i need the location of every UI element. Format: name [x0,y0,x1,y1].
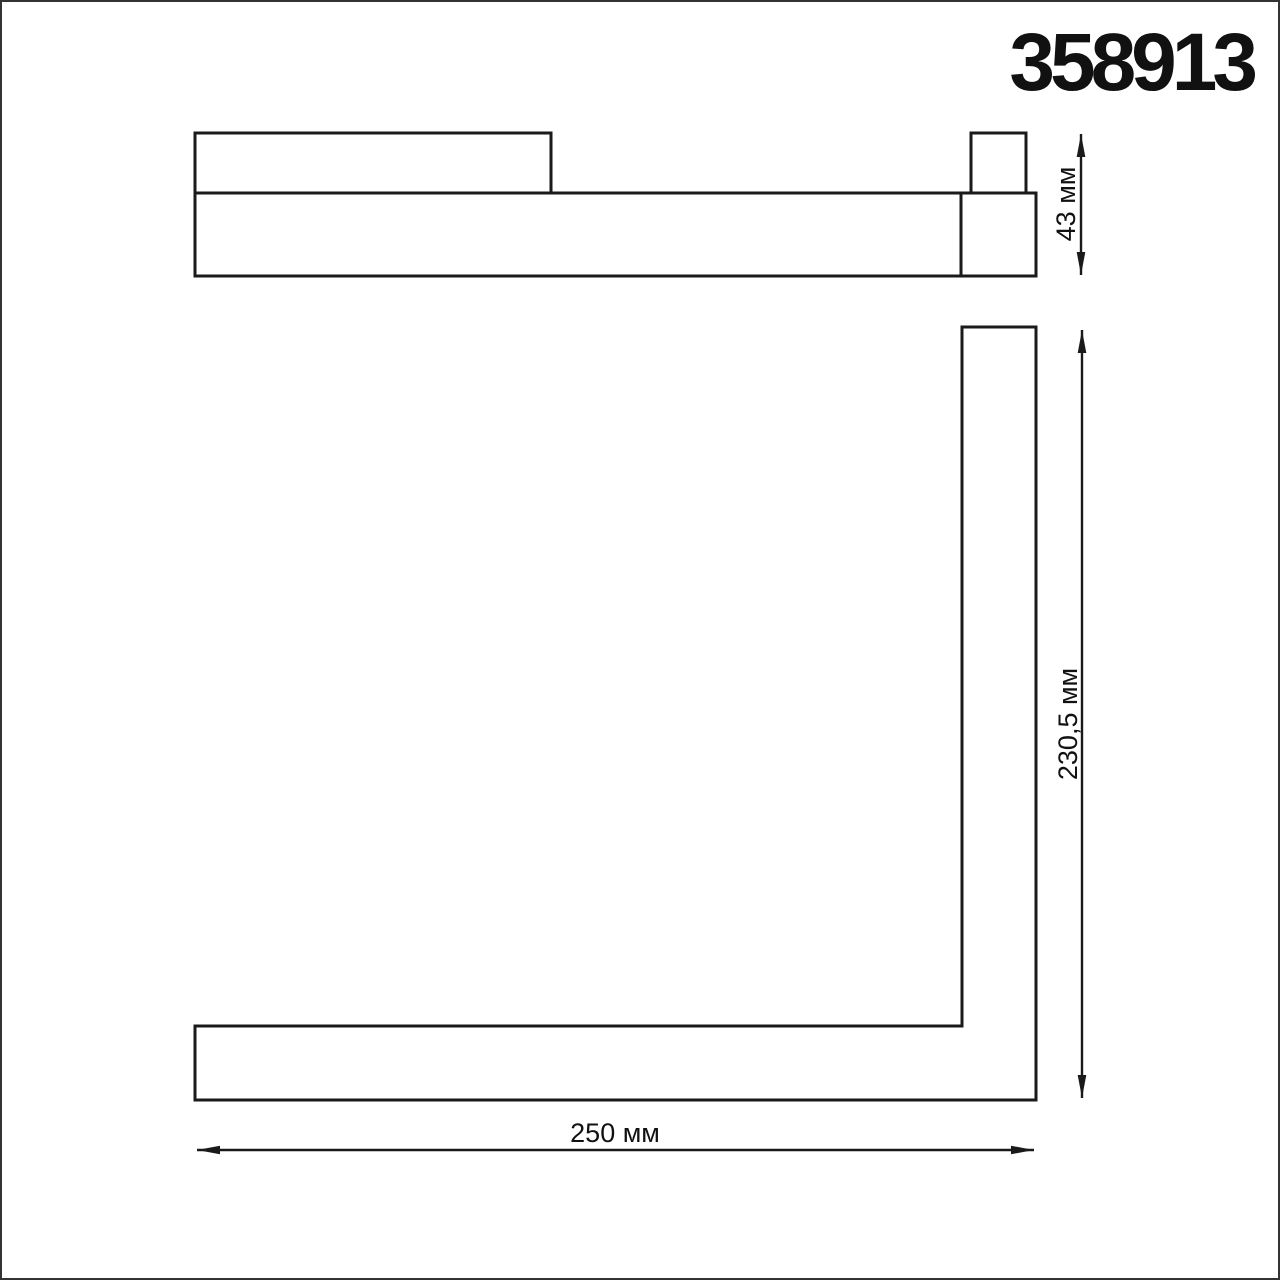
dim-label-front-width: 250 мм [515,1119,715,1147]
dimension-lines [197,134,1082,1150]
drawing-sheet: 358913 43 мм 230,5 мм [0,0,1280,1280]
side-view [195,133,1036,276]
dim-label-front-height: 230,5 мм [1054,624,1082,824]
front-view [195,327,1036,1100]
side-view-top-block [195,133,551,193]
dim-label-side-height: 43 мм [1052,134,1080,274]
front-view-l-profile [195,327,1036,1100]
side-view-connector-stub [971,133,1026,193]
technical-drawing [2,2,1280,1280]
side-view-body [195,193,1036,276]
